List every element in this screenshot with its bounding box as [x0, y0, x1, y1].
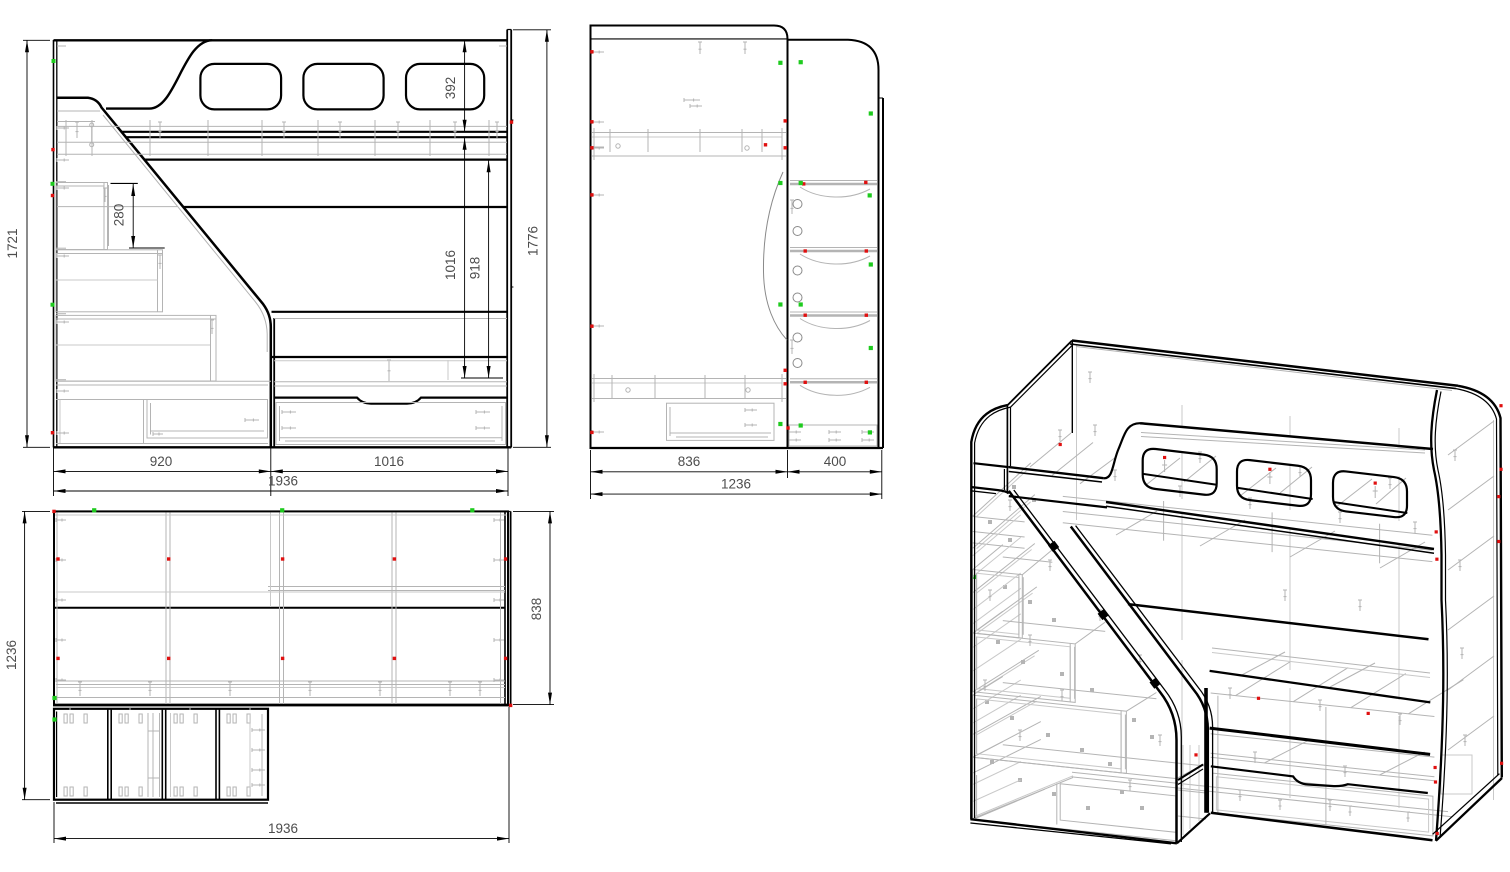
svg-text:1236: 1236 — [721, 477, 751, 492]
svg-text:1776: 1776 — [526, 226, 541, 256]
svg-text:1721: 1721 — [5, 228, 20, 258]
svg-text:838: 838 — [529, 598, 544, 621]
svg-text:280: 280 — [112, 204, 127, 227]
svg-text:1936: 1936 — [268, 474, 298, 489]
svg-text:392: 392 — [443, 77, 458, 100]
svg-text:400: 400 — [824, 454, 847, 469]
svg-text:1016: 1016 — [374, 454, 404, 469]
svg-text:1236: 1236 — [4, 640, 19, 670]
svg-text:836: 836 — [678, 454, 701, 469]
svg-text:1936: 1936 — [268, 821, 298, 836]
svg-text:918: 918 — [468, 257, 483, 280]
svg-text:1016: 1016 — [443, 250, 458, 280]
svg-text:920: 920 — [150, 454, 173, 469]
